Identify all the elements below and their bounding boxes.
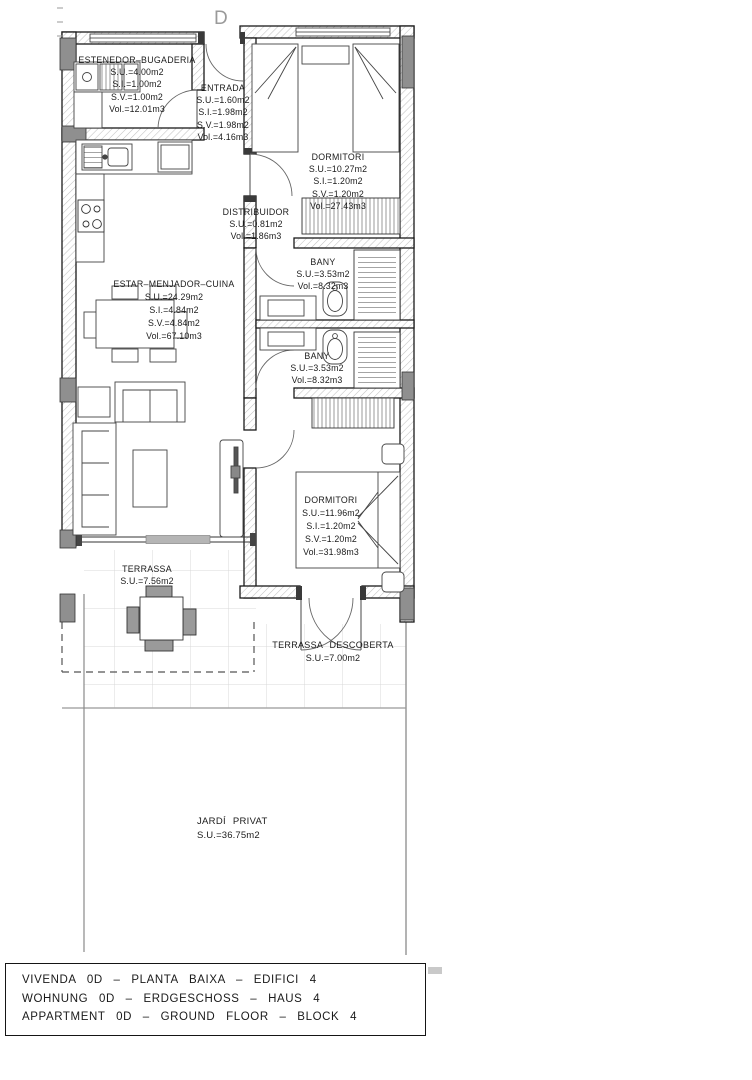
terrace-chair [145,640,173,651]
sofa-two-seat [115,382,185,422]
drawing-sheet: D ESTENEDOR–BUGADERIA S.U.=4.00m2 S.I.=1… [0,0,752,1080]
terrace-tile-grid [62,550,406,708]
single-bed-right [353,44,399,152]
title-block: VIVENDA 0D – PLANTA BAIXA – EDIFICI 4 WO… [5,963,426,1036]
room-label-estenedor: ESTENEDOR–BUGADERIA S.U.=4.00m2 S.I.=1.0… [78,54,195,115]
door-entrada [206,44,243,81]
bany1-sink [268,300,304,316]
room-label-terrassa-descoberta: TERRASSA DESCOBERTA S.U.=7.00m2 [272,639,393,664]
nightstand-top [382,444,404,464]
room-name: TERRASSA [120,563,173,575]
door-dormitori2 [256,430,294,468]
room-label-dormitori1: DORMITORI S.U.=10.27m2 S.I.=1.20m2 S.V.=… [309,151,367,212]
faucet [103,155,107,159]
floor-plan-svg [0,0,752,1080]
fridge [158,142,192,172]
terrace-chair [183,609,196,635]
room-name: JARDÍ PRIVAT [197,815,268,829]
tv-unit [220,440,243,537]
room-label-entrada: ENTRADA S.U.=1.60m2 S.I.=1.98m2 S.V.=1.9… [196,82,249,143]
coffee-table [133,450,167,507]
room-name: DISTRIBUIDOR [223,206,290,218]
room-name: DORMITORI [302,494,360,507]
room-name: ESTENEDOR–BUGADERIA [78,54,195,66]
room-name: BANY [290,350,343,362]
nightstand-between-beds [302,46,349,64]
sofa-three-seat [73,423,116,535]
stove [78,200,104,232]
window-top-dormitori1 [296,28,390,36]
room-name: TERRASSA DESCOBERTA [272,639,393,652]
dining-chair [84,312,97,338]
living-furniture [73,382,243,537]
sliding-door-panel [146,536,210,544]
dining-chair [112,349,138,362]
section-marker-d: D [214,8,228,30]
terrace-chair [127,607,139,633]
single-bed-left [252,44,298,152]
wardrobe-dormitori2 [312,398,394,428]
door-dormitori1 [250,154,292,196]
door-bany1 [256,248,294,286]
room-label-terrassa: TERRASSA S.U.=7.56m2 [120,563,173,587]
kitchen-sink [82,144,132,170]
room-label-dormitori2: DORMITORI S.U.=11.96m2 S.I.=1.20m2 S.V.=… [302,494,360,559]
title-block-shadow [428,967,442,974]
door-bany2 [256,350,294,388]
title-line-catalan: VIVENDA 0D – PLANTA BAIXA – EDIFICI 4 [22,971,425,990]
room-name: ENTRADA [196,82,249,94]
room-label-bany1: BANY S.U.=3.53m2 Vol.=8.32m3 [296,256,349,293]
room-label-estar: ESTAR–MENJADOR–CUINA S.U.=24.29m2 S.I.=4… [113,278,234,343]
room-label-jardi-privat: JARDÍ PRIVAT S.U.=36.75m2 [197,815,268,842]
dining-chair [150,349,176,362]
kitchen-counter [76,140,192,262]
terrace-table [140,597,183,640]
nightstand-bottom [382,572,404,592]
room-name: ESTAR–MENJADOR–CUINA [113,278,234,291]
room-label-distribuidor: DISTRIBUIDOR S.U.=0.81m2 Vol.=1.86m3 [223,206,290,243]
title-line-german: WOHNUNG 0D – ERDGESCHOSS – HAUS 4 [22,990,425,1009]
terrace-column-left [60,594,75,622]
terrace-chair [146,586,172,597]
sink-drainboard [84,146,102,168]
bany2-sink [268,332,304,346]
terrace-column-right [400,588,414,620]
side-table [78,387,110,417]
room-name: BANY [296,256,349,268]
room-name: DORMITORI [309,151,367,163]
room-label-bany2: BANY S.U.=3.53m2 Vol.=8.32m3 [290,350,343,387]
window-top-estenedor [90,34,196,42]
title-line-english: APPARTMENT 0D – GROUND FLOOR – BLOCK 4 [22,1008,425,1027]
